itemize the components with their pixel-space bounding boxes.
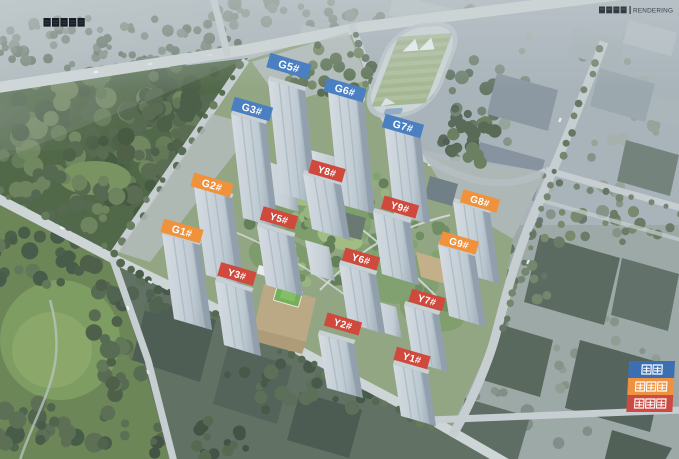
svg-text:RENDERING: RENDERING xyxy=(633,8,673,15)
